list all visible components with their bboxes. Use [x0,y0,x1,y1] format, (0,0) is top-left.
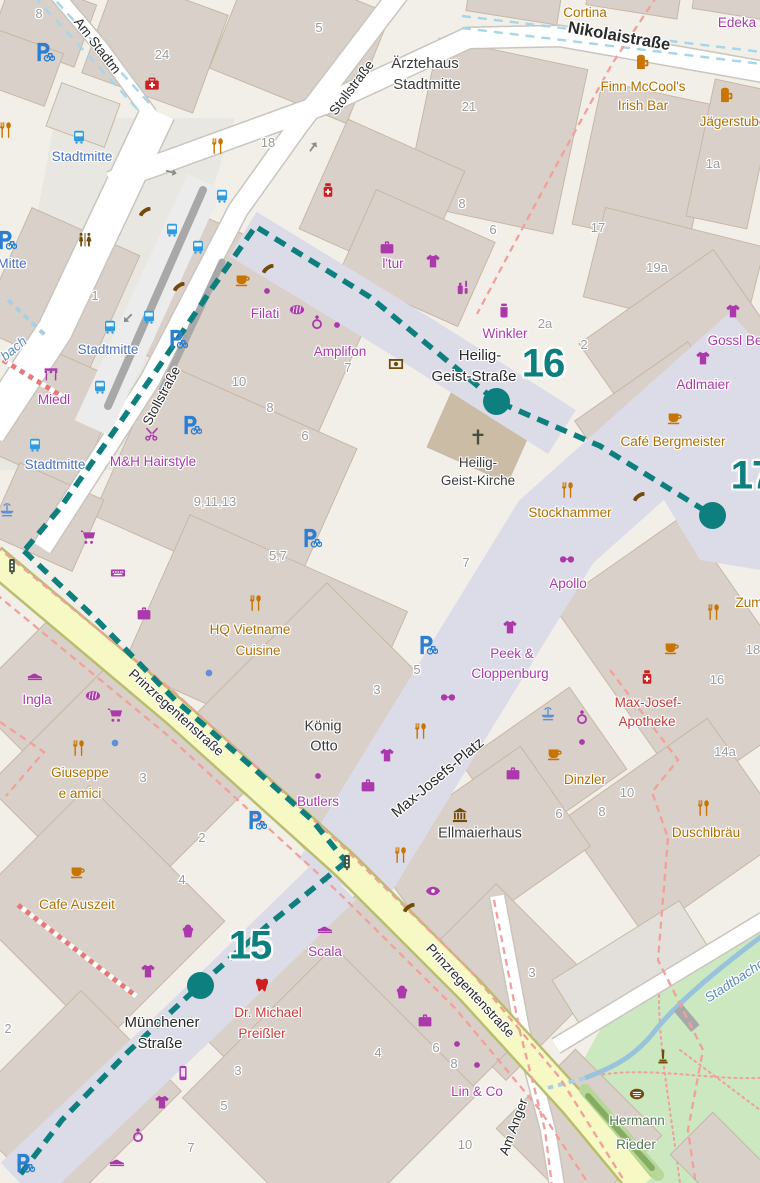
tshirt-icon [140,963,157,980]
shoe-icon [109,1152,126,1169]
fountain-icon [0,502,16,519]
bus-icon [215,189,230,204]
poi-label: Winkler [482,327,527,341]
street-name-label: Geist-Straße [431,369,516,385]
house-number: 7 [187,1141,194,1155]
place-name-label: Otto [310,739,337,754]
parking-icon [418,635,438,655]
suitcase-icon [379,239,396,256]
tooth-icon [254,977,271,994]
memorial-icon [629,1086,646,1103]
house-number: 4 [178,873,185,887]
poi-label: Apotheke [618,715,675,729]
poi-label: Max-Josef- [615,696,682,710]
bus-icon [28,438,43,453]
park-label: Hermann [609,1114,665,1128]
house-number: 3 [528,966,535,980]
poi-label: Cortina [563,6,607,20]
restaurant-icon [70,740,87,757]
poi-label: Filati [251,307,280,321]
poi-label: Cuisine [235,644,280,658]
mobile-icon [175,1065,192,1082]
cafe-icon [667,409,684,426]
dot-icon [454,1041,461,1048]
transit-stop-label: Stadtmitte [25,458,86,472]
poi-label: Lin & Co [451,1085,503,1099]
house-number: 24 [155,48,169,62]
awning-icon [43,366,60,383]
parking-icon [15,1153,35,1173]
house-number: 5 [413,663,420,677]
place-name-label: König [304,719,341,734]
trafficlight-icon [4,558,21,575]
dot-icon [334,322,341,329]
poi-label: Ingla [22,693,51,707]
cafe-icon [664,639,681,656]
house-number: 8 [35,7,42,21]
house-number: 10 [620,786,634,800]
transit-stop-label: Stadtmitte [52,150,113,164]
restaurant-icon [695,800,712,817]
poi-label: Edeka [718,16,756,30]
house-number: 18 [746,643,760,657]
transit-stop-label: Mitte [0,257,27,271]
beer-icon [718,87,735,104]
house-number: 21 [462,100,476,114]
poi-label: Cloppenburg [471,667,548,681]
route-waypoint-dot[interactable] [699,502,726,529]
house-number: 19a [646,261,668,275]
scissors-icon [144,426,161,443]
house-number: 2 [4,1022,11,1036]
shoe-icon [317,919,334,936]
jar-icon [496,302,513,319]
medbottle-icon [639,669,656,686]
restaurant-icon [705,604,722,621]
house-number: 2 [198,831,205,845]
fountain-icon [540,706,557,723]
route-waypoint-number[interactable]: 15 [229,924,272,969]
poi-label: HQ Vietname [210,623,291,637]
poi-label: Miedl [38,393,70,407]
street-name-label: Heilig- [459,348,502,364]
dot-icon [474,1062,481,1069]
restaurant-icon [392,847,409,864]
bus-icon [103,320,118,335]
poi-label: Duschlbräu [672,826,740,840]
picture-icon [388,356,405,373]
dot-icon [111,739,119,747]
cafe-icon [547,745,564,762]
house-number: 5,7 [269,549,287,563]
poi-label: Amplifon [314,345,367,359]
restaurant-icon [247,595,264,612]
house-number: 6 [555,807,562,821]
dot-icon [264,288,271,295]
bread-icon [289,301,306,318]
restaurant-icon [209,138,226,155]
poi-label: Zum [736,596,760,610]
beer-icon [634,54,651,71]
shoe-icon [27,666,44,683]
bus-icon [165,223,180,238]
trafficlight-icon [339,854,356,871]
house-number: 2a [538,317,552,331]
glasses-icon [559,550,576,567]
bread-icon [85,687,102,704]
monument-icon [655,1048,672,1065]
cafe-icon [235,271,252,288]
suitcase-icon [417,1012,434,1029]
glasses-icon [440,688,457,705]
parking-icon [0,230,17,250]
ring-icon [574,709,591,726]
house-number: 14a [714,745,736,759]
tshirt-icon [695,350,712,367]
house-number: 8 [266,401,273,415]
house-number: 8 [458,197,465,211]
restaurant-icon [0,122,14,139]
house-number: 3 [234,1064,241,1078]
house-number: 8 [450,1057,457,1071]
cosmetics-icon [454,279,471,296]
poi-label: Adlmaier [676,378,729,392]
poi-label: e amici [59,787,102,801]
house-number: 10 [458,1138,472,1152]
house-number: 1 [91,289,98,303]
tshirt-icon [502,619,519,636]
house-number: 5 [315,21,322,35]
restaurant-icon [559,482,576,499]
tshirt-icon [154,1094,171,1111]
poi-label: Preißler [238,1027,285,1041]
map-base-layer [0,0,760,1183]
ring-icon [130,1127,147,1144]
tshirt-icon [725,303,742,320]
keyboard-icon [110,565,127,582]
street-name-label: Straße [137,1036,182,1052]
house-number: 18 [261,136,275,150]
poi-label: Irish Bar [618,99,668,113]
cross-icon [468,427,488,447]
parking-icon [182,415,202,435]
bus-icon [191,240,206,255]
parking-icon [302,528,322,548]
suitcase-icon [505,765,522,782]
poi-label: Peek & [490,647,534,661]
restaurant-icon [412,723,429,740]
cafe-icon [70,863,87,880]
poi-label: Apollo [549,577,587,591]
house-number: 4 [374,1046,381,1060]
ring-icon [309,314,326,331]
route-waypoint-number[interactable]: 17 [731,454,760,499]
place-name-label: Stadtmitte [393,77,461,93]
place-name-label: Heilig- [459,456,497,470]
house-number: 3 [139,771,146,785]
route-waypoint-number[interactable]: 16 [522,342,565,387]
house-number: 16 [710,673,724,687]
poi-label: Dr. Michael [234,1006,302,1020]
house-number: 3 [373,683,380,697]
house-number: 10 [232,375,246,389]
cart-icon [107,707,124,724]
house-number: 6 [489,223,496,237]
route-waypoint-dot[interactable] [483,388,510,415]
transit-stop-label: Stadtmitte [78,343,139,357]
parking-icon [247,810,267,830]
eye-icon [425,883,442,900]
cart-icon [80,529,97,546]
house-number: 6 [432,1041,439,1055]
suitcase-icon [136,605,153,622]
suitcase-icon [360,777,377,794]
poi-label: Café Bergmeister [620,435,725,449]
place-name-label: Ärztehaus [391,56,459,72]
museum-icon [452,807,469,824]
cupcake-icon [180,923,197,940]
poi-label: Finn McCool's [600,80,685,94]
house-number: 2 [580,338,587,352]
poi-label: Gossl Be [708,334,760,348]
bus-icon [93,380,108,395]
poi-label: Jägerstube [700,115,760,129]
dot-icon [579,739,586,746]
medbottle-icon [320,182,337,199]
tshirt-icon [425,253,442,270]
bus-icon [142,310,157,325]
street-name-label: Münchener [124,1015,199,1031]
house-number: 1a [706,157,720,171]
poi-label: Dinzler [564,773,606,787]
house-number: 9,11,13 [194,495,236,509]
dot-icon [315,773,322,780]
firstaid-icon [144,76,161,93]
route-waypoint-dot[interactable] [187,972,214,999]
poi-label: Stockhammer [528,506,611,520]
place-name-label: Ellmaierhaus [438,826,522,841]
poi-label: Cafe Auszeit [39,898,115,912]
cupcake-icon [394,984,411,1001]
poi-label: Butlers [297,795,339,809]
bus-icon [72,130,87,145]
poi-label: l'tur [382,257,403,271]
map-canvas[interactable]: Am StadtmStollstraßeStollstraßeNikolaist… [0,0,760,1183]
tshirt-icon [379,747,396,764]
house-number: 8 [598,805,605,819]
parking-icon [168,329,188,349]
house-number: 6 [301,429,308,443]
poi-label: Scala [308,945,342,959]
park-label: Rieder [616,1138,656,1152]
poi-label: M&H Hairstyle [110,455,196,469]
house-number: 7 [462,556,469,570]
house-number: 7 [344,361,351,375]
house-number: 17 [591,221,605,235]
wc-icon [77,232,94,249]
poi-label: Giuseppe [51,766,109,780]
house-number: 5 [220,1099,227,1113]
place-name-label: Geist-Kirche [441,474,515,488]
dot-icon [205,669,213,677]
parking-icon [35,42,55,62]
